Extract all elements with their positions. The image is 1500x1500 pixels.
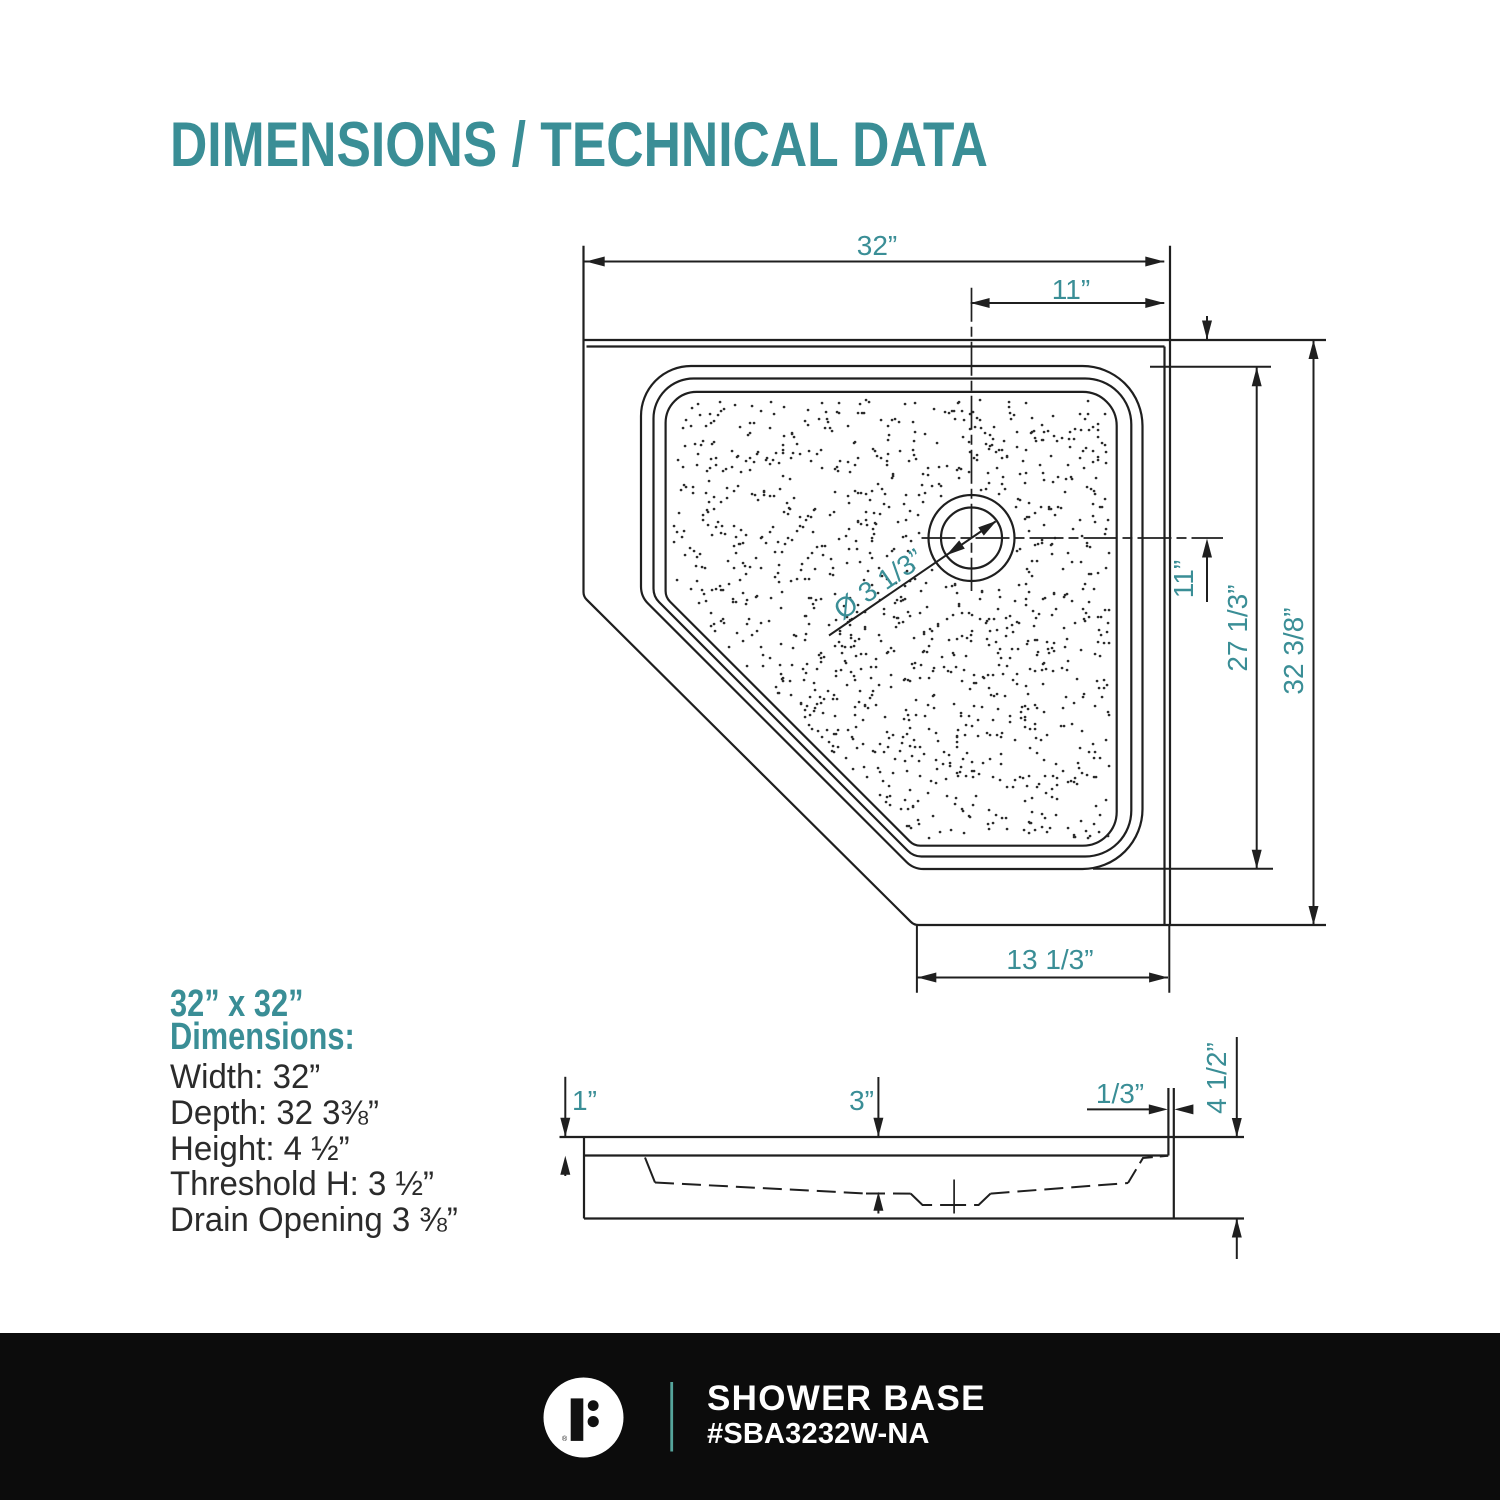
svg-text:32”: 32” (857, 230, 897, 261)
svg-text:32 3/8”: 32 3/8” (1278, 607, 1309, 694)
svg-text:27 1/3”: 27 1/3” (1222, 584, 1253, 671)
svg-text:3”: 3” (849, 1085, 874, 1116)
svg-text:Ø 3 1/3”: Ø 3 1/3” (828, 543, 929, 626)
svg-text:11”: 11” (1168, 560, 1199, 598)
svg-text:1”: 1” (572, 1085, 597, 1116)
svg-text:13 1/3”: 13 1/3” (1006, 944, 1093, 975)
svg-text:1/3”: 1/3” (1096, 1078, 1144, 1109)
svg-text:®: ® (562, 1435, 568, 1443)
svg-text:4 1/2”: 4 1/2” (1201, 1042, 1232, 1114)
svg-text:11”: 11” (1052, 274, 1090, 305)
